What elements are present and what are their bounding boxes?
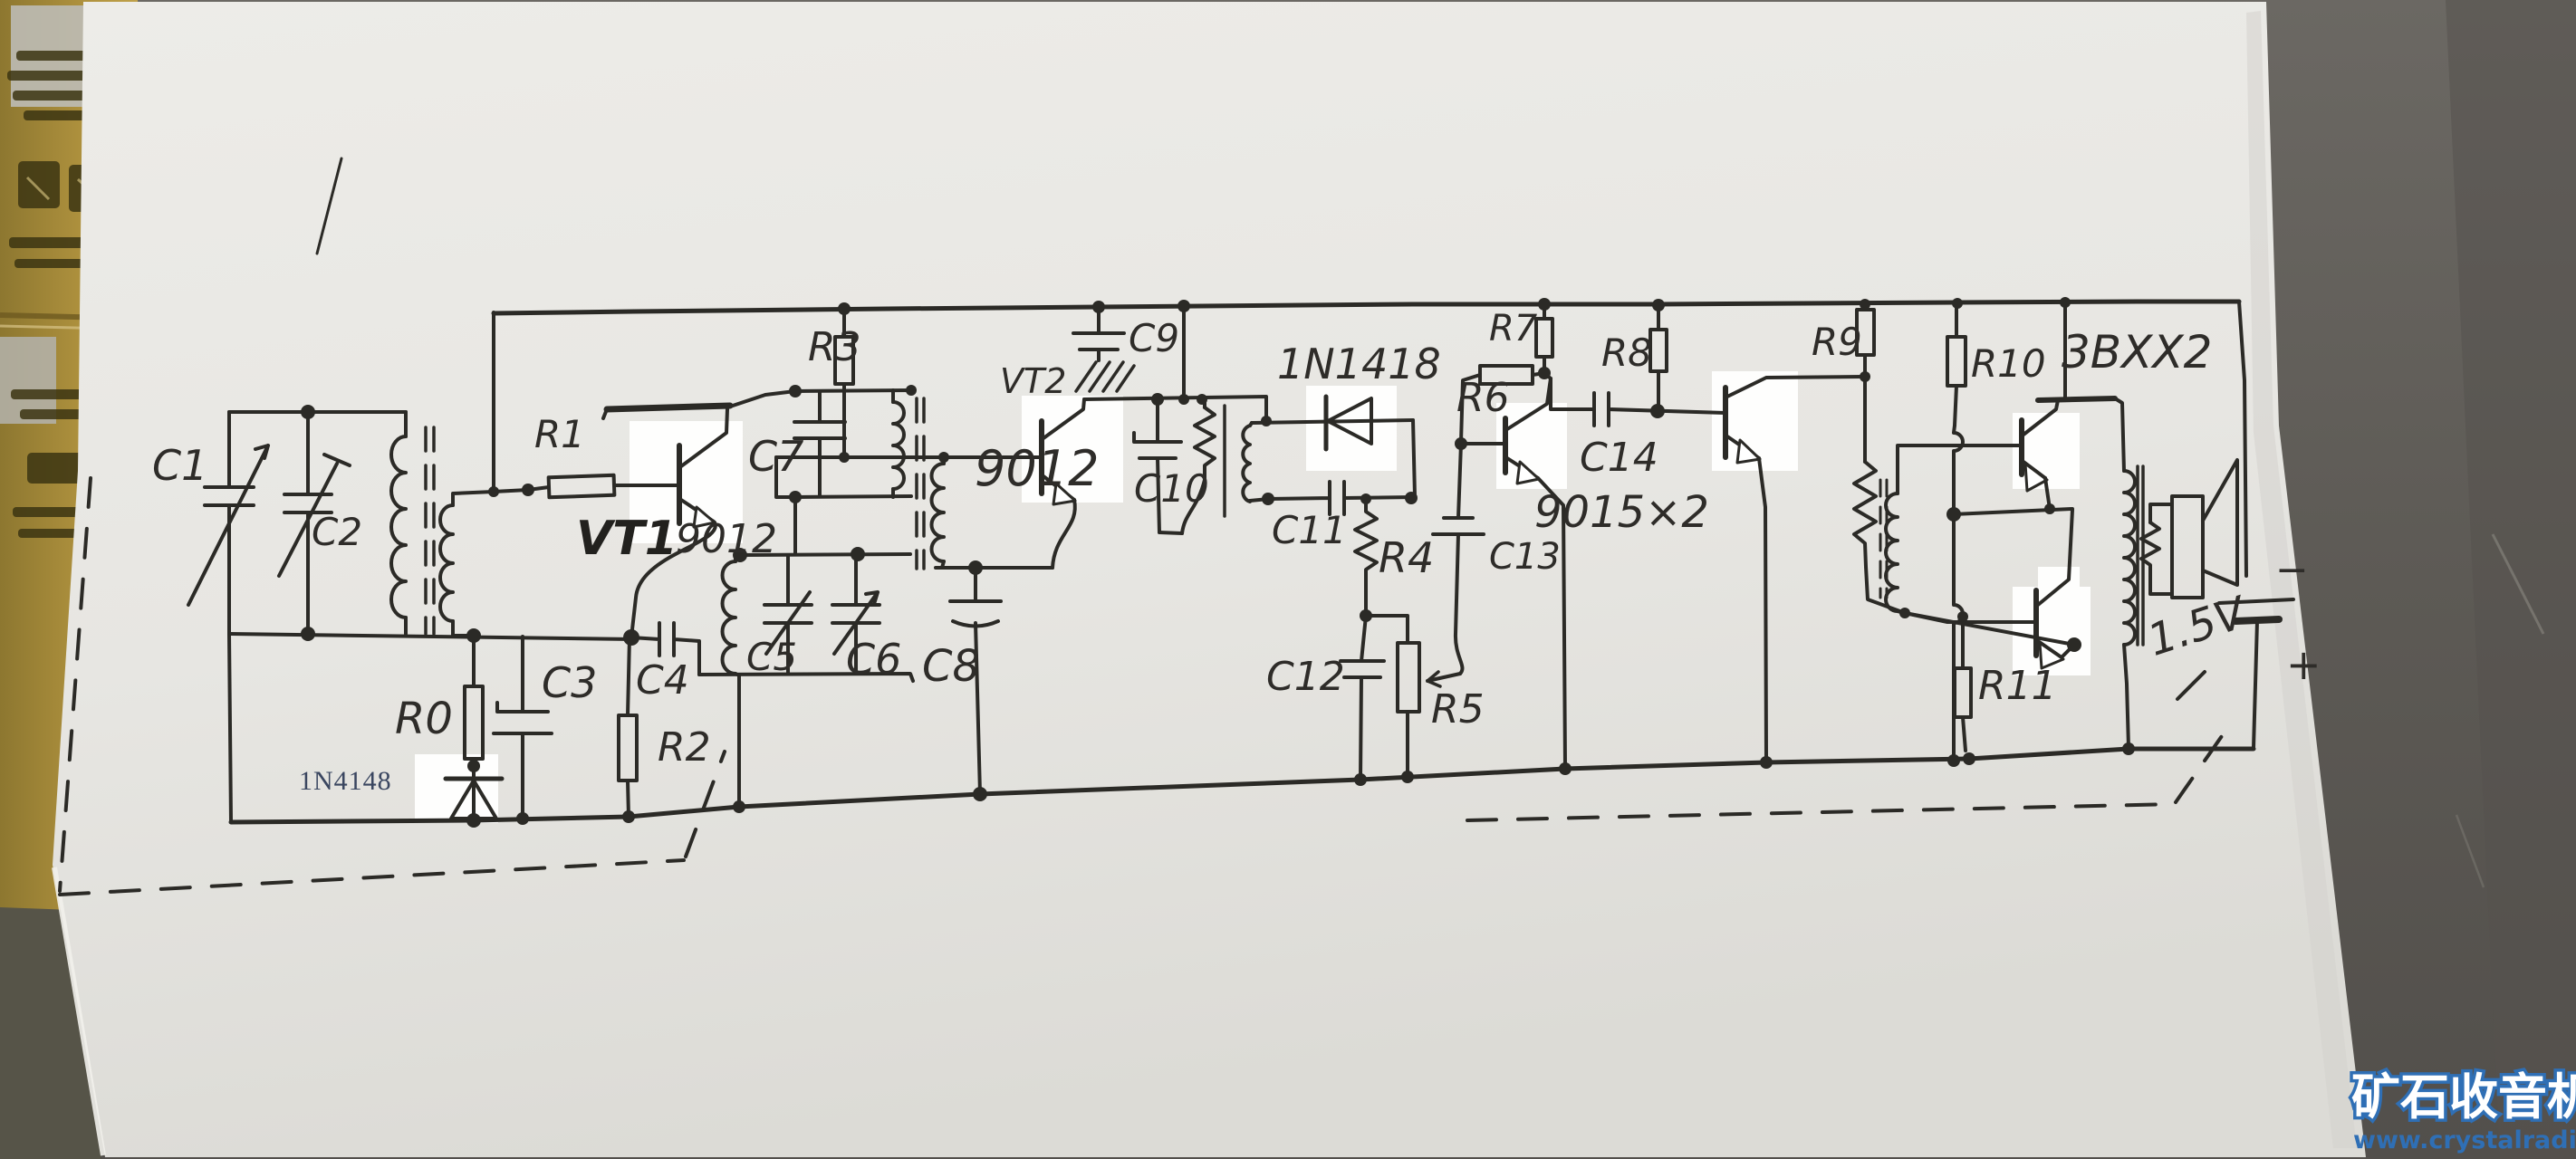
schematic-photo-canvas: C1 C2 R0 1N4148 C3 R1 VT1 9012 C4 R2 C5 … — [0, 0, 2576, 1159]
label-d1-printed: 1N4148 — [299, 766, 392, 796]
label-c6: C6 — [846, 635, 901, 684]
label-r6: R6 — [1456, 375, 1510, 421]
watermark-site-url: www.crystalradio.cn — [2353, 1126, 2576, 1154]
label-vt1-type: 9012 — [676, 516, 777, 562]
label-af-pair: 9015×2 — [1534, 487, 1709, 538]
output-node-line — [2038, 398, 2115, 400]
label-c11: C11 — [1272, 508, 1347, 552]
label-d2: 1N1418 — [1277, 340, 1441, 388]
label-r10: R10 — [1971, 341, 2046, 386]
label-c7: C7 — [748, 432, 803, 481]
label-c5: C5 — [746, 635, 797, 679]
label-c13: C13 — [1489, 536, 1561, 578]
label-c12: C12 — [1266, 654, 1345, 700]
label-r1: R1 — [534, 412, 585, 456]
label-battery-plus: + — [2286, 640, 2321, 689]
watermark: 矿石收音机 www.crystalradio.cn — [2351, 1068, 2576, 1154]
label-r9: R9 — [1812, 320, 1862, 364]
label-r11: R11 — [1978, 663, 2057, 709]
watermark-site-name: 矿石收音机 — [2351, 1068, 2576, 1125]
label-r5: R5 — [1431, 686, 1485, 733]
label-r8: R8 — [1601, 330, 1652, 375]
label-c1: C1 — [152, 441, 207, 490]
label-c2: C2 — [312, 510, 362, 554]
label-c10: C10 — [1134, 466, 1209, 511]
label-r4: R4 — [1379, 533, 1434, 582]
label-vt2-type: 9012 — [975, 440, 1099, 497]
label-c3: C3 — [542, 658, 597, 707]
label-r0: R0 — [395, 694, 453, 744]
label-c14: C14 — [1580, 435, 1658, 481]
label-vt2: VT2 — [1000, 361, 1066, 401]
label-battery-minus: − — [2275, 547, 2309, 593]
screenshot-photo: C1 C2 R0 1N4148 C3 R1 VT1 9012 C4 R2 C5 … — [0, 0, 2576, 1159]
label-out-pair: 3BXX2 — [2062, 326, 2212, 378]
label-c9: C9 — [1129, 316, 1179, 360]
label-r2: R2 — [658, 724, 711, 771]
label-r3: R3 — [808, 324, 861, 370]
label-vt1: VT1 — [576, 512, 678, 566]
label-c8: C8 — [922, 641, 980, 692]
label-c4: C4 — [636, 657, 689, 704]
label-r7: R7 — [1489, 308, 1538, 350]
collector-rail-heavy — [607, 406, 730, 409]
